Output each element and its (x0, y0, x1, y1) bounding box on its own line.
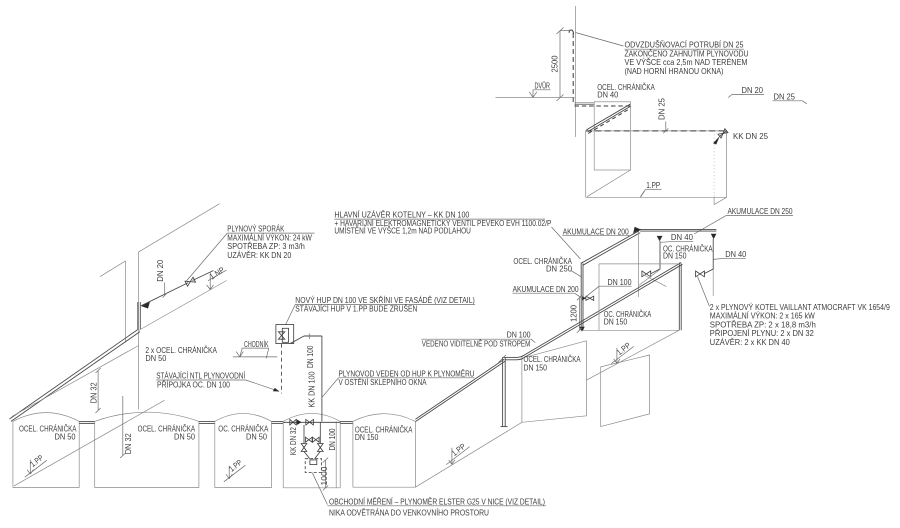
svg-text:DN 100: DN 100 (328, 428, 337, 450)
svg-text:(NAD HORNÍ HRANOU OKNA): (NAD HORNÍ HRANOU OKNA) (625, 67, 724, 76)
svg-text:DN 150: DN 150 (604, 317, 628, 326)
svg-text:DN 50: DN 50 (55, 432, 76, 441)
svg-text:PŘIPOJENÍ PLYNU: 2 x DN 32: PŘIPOJENÍ PLYNU: 2 x DN 32 (710, 329, 815, 338)
svg-text:MAXIMÁLNÍ VÝKON: 2 x 165 kW: MAXIMÁLNÍ VÝKON: 2 x 165 kW (710, 312, 815, 321)
svg-text:SPOTŘEBA ZP: 2 x 18,8 m3/h: SPOTŘEBA ZP: 2 x 18,8 m3/h (710, 320, 816, 329)
svg-text:UZÁVĚR: KK DN 20: UZÁVĚR: KK DN 20 (227, 251, 291, 260)
svg-text:OBCHODNÍ MĚŘENÍ – PLYNOMĚR ELS: OBCHODNÍ MĚŘENÍ – PLYNOMĚR ELSTER G25 V … (329, 497, 545, 506)
svg-text:UZÁVĚR: 2 x KK DN 40: UZÁVĚR: 2 x KK DN 40 (710, 338, 791, 347)
svg-text:DVŮR: DVŮR (535, 82, 551, 91)
svg-text:CHODNÍK: CHODNÍK (244, 340, 269, 349)
svg-text:DN 150: DN 150 (663, 252, 687, 261)
svg-text:PLYNOVÝ SPORÁK: PLYNOVÝ SPORÁK (227, 225, 285, 234)
svg-text:ZAKONČENO ZAHNUTÍM PLYNOVODU: ZAKONČENO ZAHNUTÍM PLYNOVODU (625, 49, 749, 58)
svg-text:UMÍSTĚNÍ VE VÝŠCE 1,2m NAD POD: UMÍSTĚNÍ VE VÝŠCE 1,2m NAD PODLAHOU (334, 227, 471, 236)
svg-text:DN 20: DN 20 (742, 86, 764, 95)
svg-text:2 x PLYNOVÝ KOTEL VAILLANT ATM: 2 x PLYNOVÝ KOTEL VAILLANT ATMOCRAFT VK … (710, 303, 890, 312)
svg-text:DN 100: DN 100 (306, 345, 315, 368)
svg-text:DN 50: DN 50 (145, 354, 166, 363)
svg-text:DN 40: DN 40 (671, 233, 694, 242)
svg-text:V OSTĚNÍ SKLEPNÍHO OKNA: V OSTĚNÍ SKLEPNÍHO OKNA (339, 378, 428, 387)
svg-text:DN 150: DN 150 (355, 433, 379, 442)
svg-text:KK DN 100: KK DN 100 (308, 371, 317, 407)
svg-text:DN 250: DN 250 (546, 265, 573, 274)
svg-text:DN 25: DN 25 (774, 93, 796, 102)
svg-text:DN 32: DN 32 (90, 382, 99, 403)
svg-text:SPOTŘEBA ZP: 3 m3/h: SPOTŘEBA ZP: 3 m3/h (227, 242, 304, 251)
svg-text:1000: 1000 (320, 466, 329, 486)
svg-text:DN 20: DN 20 (156, 259, 165, 282)
svg-text:VE VÝŠCE cca 2,5m NAD TERÉNEM: VE VÝŠCE cca 2,5m NAD TERÉNEM (625, 58, 748, 67)
svg-text:2500: 2500 (551, 55, 560, 73)
svg-text:DN 40: DN 40 (597, 91, 618, 100)
svg-text:AKUMULACE DN 250: AKUMULACE DN 250 (728, 207, 793, 216)
svg-text:1200: 1200 (570, 304, 579, 322)
svg-text:NIKA ODVĚTRÁNA DO VENKOVNÍHO P: NIKA ODVĚTRÁNA DO VENKOVNÍHO PROSTORU (329, 509, 489, 518)
svg-text:DN 150: DN 150 (524, 363, 548, 372)
svg-text:AKUMULACE DN 200: AKUMULACE DN 200 (513, 285, 579, 294)
svg-text:DN 25: DN 25 (657, 97, 666, 120)
svg-text:ODVZDUŠŇOVACÍ POTRUBÍ DN 25: ODVZDUŠŇOVACÍ POTRUBÍ DN 25 (625, 41, 744, 50)
svg-text:DN 50: DN 50 (174, 433, 195, 442)
svg-text:VEDENO VIDITELNĚ POD STROPEM: VEDENO VIDITELNĚ POD STROPEM (422, 340, 531, 349)
svg-text:DN 40: DN 40 (725, 250, 746, 259)
svg-text:DN 100: DN 100 (608, 278, 632, 287)
svg-text:STÁVAJÍCÍ HUP V 1.PP BUDE ZRUŠ: STÁVAJÍCÍ HUP V 1.PP BUDE ZRUŠEN (295, 304, 417, 313)
svg-text:KK DN 32: KK DN 32 (289, 427, 298, 455)
svg-text:AKUMULACE DN 200: AKUMULACE DN 200 (563, 227, 629, 236)
svg-text:DN 100: DN 100 (507, 330, 531, 339)
svg-text:PŘÍPOJKA OC. DN 100: PŘÍPOJKA OC. DN 100 (157, 381, 230, 390)
svg-text:MAXIMÁLNÍ VÝKON: 24 kW: MAXIMÁLNÍ VÝKON: 24 kW (227, 233, 312, 242)
svg-text:DN 32: DN 32 (124, 433, 133, 454)
svg-text:KK DN 25: KK DN 25 (733, 132, 769, 141)
svg-text:1.PP: 1.PP (646, 181, 660, 190)
svg-text:DN 50: DN 50 (246, 432, 267, 441)
svg-text:PLYNOVOD VEDEN OD HUP K PLYNOM: PLYNOVOD VEDEN OD HUP K PLYNOMĚRU (339, 369, 475, 378)
svg-text:STÁVAJÍCÍ NTL PLYNOVODNÍ: STÁVAJÍCÍ NTL PLYNOVODNÍ (156, 371, 246, 380)
